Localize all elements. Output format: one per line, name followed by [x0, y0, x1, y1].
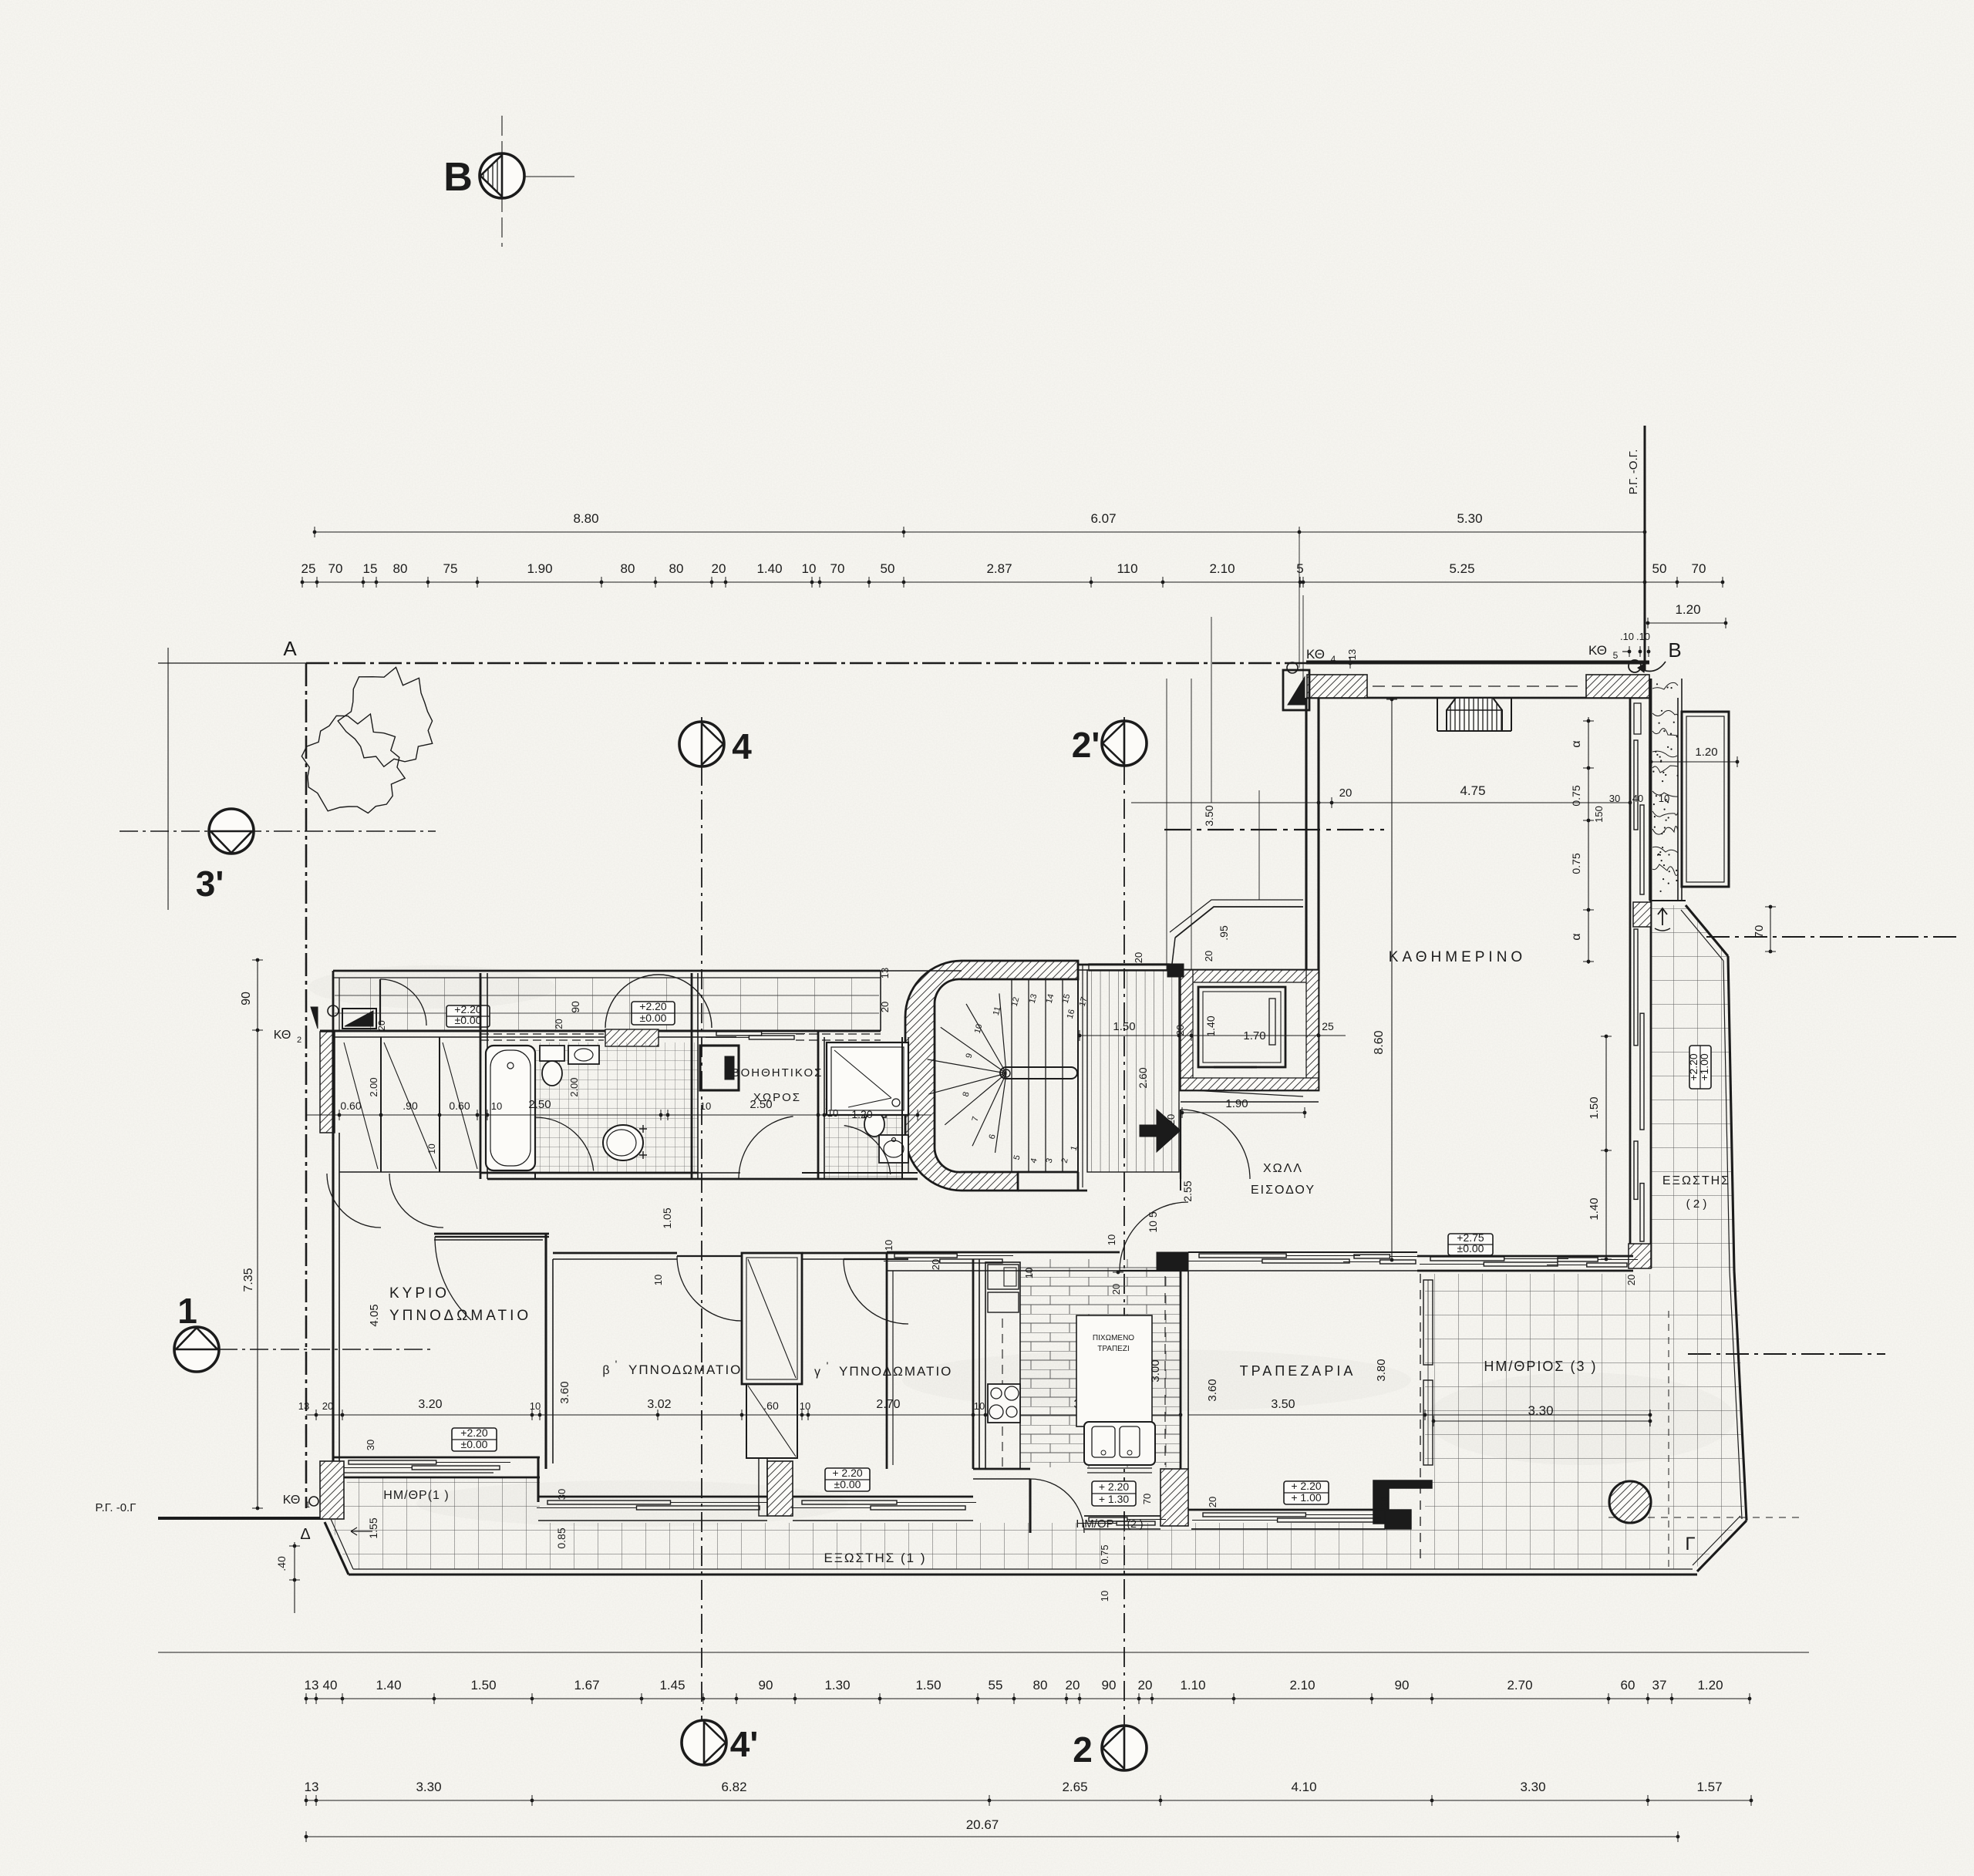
svg-text:0.60: 0.60	[449, 1100, 470, 1112]
svg-text:±0.00: ±0.00	[461, 1438, 488, 1450]
svg-text:ΧΩΛΛ: ΧΩΛΛ	[1263, 1162, 1303, 1175]
svg-text:3.50: 3.50	[1203, 805, 1215, 826]
svg-text:1.67: 1.67	[574, 1678, 599, 1692]
svg-text:1.05: 1.05	[661, 1207, 673, 1228]
svg-text:70: 70	[830, 561, 845, 576]
svg-text:3.00: 3.00	[1149, 1359, 1162, 1382]
svg-text:50: 50	[1652, 561, 1667, 576]
svg-text:3.20: 3.20	[418, 1398, 442, 1411]
svg-text:1.50: 1.50	[1588, 1096, 1601, 1119]
svg-text:50: 50	[881, 561, 895, 576]
svg-text:13: 13	[298, 1400, 309, 1412]
svg-text:3.30: 3.30	[1520, 1780, 1545, 1794]
svg-text:2.55: 2.55	[1181, 1180, 1194, 1201]
svg-text:2.70: 2.70	[876, 1398, 900, 1411]
svg-text:20: 20	[1165, 1114, 1177, 1125]
svg-text:2.10: 2.10	[1209, 561, 1235, 576]
svg-text:40: 40	[1632, 793, 1643, 804]
svg-text:30: 30	[365, 1440, 376, 1450]
svg-text:20: 20	[1133, 952, 1144, 963]
svg-text:70: 70	[1753, 925, 1766, 938]
svg-text:20: 20	[712, 561, 726, 576]
svg-text:.90: .90	[403, 1100, 418, 1112]
svg-text:+ 1.30: + 1.30	[1099, 1493, 1130, 1505]
svg-text:4.75: 4.75	[1460, 783, 1485, 798]
svg-text:20.67: 20.67	[966, 1817, 999, 1832]
svg-text:2.50: 2.50	[750, 1098, 772, 1111]
svg-text:10: 10	[883, 1240, 894, 1251]
svg-text:1.40: 1.40	[1588, 1197, 1601, 1220]
svg-text:4: 4	[732, 726, 752, 766]
svg-text:10: 10	[652, 1275, 664, 1285]
svg-text:±0.00: ±0.00	[640, 1012, 667, 1024]
svg-text:1.40: 1.40	[756, 561, 782, 576]
svg-text:4': 4'	[730, 1724, 759, 1764]
svg-text:13: 13	[879, 968, 891, 978]
svg-text:ΚΘ: ΚΘ	[1588, 643, 1607, 658]
svg-text:ΠΙΧΩΜΕΝΟ: ΠΙΧΩΜΕΝΟ	[1093, 1334, 1134, 1342]
svg-text:10: 10	[974, 1400, 985, 1412]
svg-text:ΗΜ/ΘΡ(1 ): ΗΜ/ΘΡ(1 )	[383, 1489, 449, 1502]
svg-text:3.02: 3.02	[647, 1398, 671, 1411]
svg-text:3.60: 3.60	[1206, 1379, 1219, 1401]
svg-text:10: 10	[827, 1107, 838, 1119]
svg-text:15: 15	[363, 561, 378, 576]
svg-text:α: α	[1570, 740, 1583, 747]
svg-text:90: 90	[569, 1001, 581, 1013]
svg-text:±0.00: ±0.00	[1457, 1242, 1484, 1255]
svg-text:P.Γ. -O.Γ.: P.Γ. -O.Γ.	[1627, 450, 1640, 495]
svg-text:3.30: 3.30	[1528, 1403, 1553, 1418]
svg-text:ΚΘ: ΚΘ	[274, 1029, 291, 1042]
svg-text:30: 30	[556, 1489, 568, 1500]
svg-text:1.40: 1.40	[376, 1678, 401, 1692]
svg-text:6.07: 6.07	[1090, 511, 1116, 526]
svg-text:( 2 ): ( 2 )	[1686, 1197, 1707, 1211]
svg-text:0.85: 0.85	[555, 1527, 568, 1548]
svg-text:Γ: Γ	[1685, 1534, 1695, 1554]
svg-text:70: 70	[328, 561, 343, 576]
svg-text:1.45: 1.45	[659, 1678, 685, 1692]
svg-text:.10: .10	[1636, 631, 1650, 642]
svg-text:20: 20	[879, 1002, 891, 1012]
svg-text:1.90: 1.90	[1225, 1097, 1248, 1110]
svg-text:20: 20	[1339, 786, 1352, 800]
svg-text:1.20: 1.20	[1695, 746, 1717, 759]
svg-text:±0.00: ±0.00	[455, 1014, 482, 1026]
svg-text:1.55: 1.55	[367, 1517, 379, 1538]
svg-text:2.60: 2.60	[1137, 1067, 1149, 1088]
svg-text:.95: .95	[1218, 925, 1230, 941]
svg-text:70: 70	[1692, 561, 1706, 576]
svg-text:2.10: 2.10	[1289, 1678, 1315, 1692]
svg-text:1.50: 1.50	[915, 1678, 941, 1692]
svg-text:ΕΙΣΟΔΟΥ: ΕΙΣΟΔΟΥ	[1251, 1184, 1315, 1197]
svg-text:+ 2.20: + 2.20	[832, 1467, 863, 1479]
svg-text:80: 80	[669, 561, 684, 576]
svg-text:.10: .10	[1620, 631, 1634, 642]
svg-text:20: 20	[1207, 1497, 1218, 1507]
svg-text:+1.00: +1.00	[1698, 1053, 1710, 1081]
svg-text:25: 25	[301, 561, 316, 576]
svg-text:ΤΡΑΠΕΖΙ: ΤΡΑΠΕΖΙ	[1097, 1345, 1129, 1353]
svg-text:2.87: 2.87	[986, 561, 1012, 576]
svg-text:ΚΘ: ΚΘ	[283, 1494, 301, 1507]
svg-text:2: 2	[297, 1036, 301, 1045]
svg-text:2.70: 2.70	[1507, 1678, 1532, 1692]
svg-text:+ 1.00: + 1.00	[1291, 1491, 1322, 1504]
svg-text:1.30: 1.30	[824, 1678, 850, 1692]
svg-text:ΥΠΝΟΔΩΜΑΤΙΟ: ΥΠΝΟΔΩΜΑΤΙΟ	[839, 1364, 952, 1379]
svg-text:3.30: 3.30	[416, 1780, 441, 1794]
svg-text:25: 25	[1322, 1020, 1334, 1032]
svg-text:10: 10	[800, 1400, 810, 1412]
svg-text:10: 10	[802, 561, 817, 576]
svg-text:+2.20: +2.20	[639, 1000, 667, 1012]
svg-text:0.60: 0.60	[340, 1100, 361, 1112]
svg-text:+ 2.20: + 2.20	[1291, 1480, 1322, 1492]
svg-text:20: 20	[554, 1019, 564, 1029]
svg-text:8.80: 8.80	[573, 511, 598, 526]
svg-text:ΚΘ: ΚΘ	[1306, 647, 1325, 662]
svg-text:ΕΞΩΣΤΗΣ (1 ): ΕΞΩΣΤΗΣ (1 )	[824, 1551, 927, 1565]
svg-text:4: 4	[1331, 654, 1336, 665]
svg-text:10: 10	[1106, 1234, 1117, 1245]
svg-text:20: 20	[1174, 1025, 1186, 1036]
svg-text:3.50: 3.50	[1271, 1398, 1295, 1411]
svg-text:1.50: 1.50	[470, 1678, 496, 1692]
svg-text:1.10: 1.10	[1180, 1678, 1205, 1692]
svg-text:6.82: 6.82	[721, 1780, 746, 1794]
svg-text:A: A	[283, 637, 297, 660]
svg-text:40: 40	[323, 1678, 338, 1692]
svg-text:90: 90	[240, 992, 253, 1005]
svg-text:+ 2.20: + 2.20	[1099, 1480, 1130, 1493]
svg-text:2.00: 2.00	[568, 1077, 580, 1096]
svg-text:1.20: 1.20	[851, 1108, 872, 1120]
svg-text:': '	[615, 1358, 618, 1370]
svg-text:20: 20	[376, 1020, 387, 1031]
svg-text:10: 10	[700, 1100, 711, 1112]
svg-text:ΥΠΝΟΔΩΜΑΤΙΟ: ΥΠΝΟΔΩΜΑΤΙΟ	[628, 1362, 742, 1377]
svg-text:110: 110	[1117, 561, 1137, 576]
svg-text:55: 55	[989, 1678, 1003, 1692]
svg-text:1.40: 1.40	[1204, 1015, 1217, 1036]
svg-text:70: 70	[1141, 1494, 1153, 1504]
svg-text:.60: .60	[763, 1399, 779, 1412]
svg-text:ΚΥΡΙΟ: ΚΥΡΙΟ	[389, 1285, 450, 1302]
svg-text:20: 20	[1203, 951, 1214, 962]
svg-text:13: 13	[305, 1678, 319, 1692]
svg-text:20: 20	[1625, 1275, 1637, 1285]
svg-text:10: 10	[1023, 1268, 1035, 1278]
svg-text:13: 13	[1346, 649, 1358, 660]
svg-text:2.50: 2.50	[528, 1098, 551, 1111]
svg-text:80: 80	[1033, 1678, 1048, 1692]
svg-text:1.20: 1.20	[1675, 602, 1700, 617]
svg-text:150: 150	[1593, 806, 1605, 823]
svg-text:10: 10	[1659, 793, 1669, 804]
svg-text:3': 3'	[196, 864, 224, 904]
svg-text:10: 10	[491, 1100, 502, 1112]
svg-text:7.35: 7.35	[242, 1268, 255, 1292]
svg-text:75: 75	[443, 561, 458, 576]
svg-text:20: 20	[1379, 1497, 1390, 1507]
svg-text:80: 80	[393, 561, 408, 576]
svg-text:5: 5	[1296, 561, 1303, 576]
svg-text:8.60: 8.60	[1373, 1030, 1386, 1054]
svg-text:ΚΑΘΗΜΕΡΙΝΟ: ΚΑΘΗΜΕΡΙΝΟ	[1389, 949, 1526, 965]
svg-text:Δ: Δ	[300, 1526, 310, 1543]
svg-text:B: B	[1668, 638, 1681, 662]
svg-text:β: β	[602, 1364, 609, 1377]
svg-text:ΗΜ/ΘΡ: ΗΜ/ΘΡ	[1076, 1517, 1113, 1531]
svg-text:+2.20: +2.20	[460, 1426, 488, 1439]
svg-text:2': 2'	[1072, 725, 1100, 765]
svg-text:ΤΡΑΠΕΖΑΡΙΑ: ΤΡΑΠΕΖΑΡΙΑ	[1240, 1363, 1356, 1379]
svg-text:ΒΟΗΘΗΤΙΚΟΣ: ΒΟΗΘΗΤΙΚΟΣ	[732, 1066, 824, 1079]
svg-text:60: 60	[1621, 1678, 1635, 1692]
svg-text:±0.00: ±0.00	[834, 1478, 861, 1490]
svg-text:0.75: 0.75	[1099, 1544, 1110, 1564]
svg-text:90: 90	[1395, 1678, 1410, 1692]
svg-text:.40: .40	[275, 1556, 288, 1571]
svg-text:ΗΜ/ΘΡΙΟΣ (3 ): ΗΜ/ΘΡΙΟΣ (3 )	[1484, 1359, 1597, 1374]
svg-text:': '	[827, 1359, 829, 1372]
svg-text:5: 5	[1613, 650, 1619, 661]
svg-text:0.75: 0.75	[1570, 853, 1582, 874]
svg-text:α: α	[1570, 933, 1583, 940]
svg-text:10: 10	[426, 1143, 437, 1154]
svg-text:90: 90	[759, 1678, 773, 1692]
svg-text:4.10: 4.10	[1291, 1780, 1316, 1794]
svg-text:3.60: 3.60	[558, 1381, 571, 1403]
svg-text:1.50: 1.50	[1113, 1020, 1135, 1033]
svg-text:2.00: 2.00	[368, 1077, 379, 1096]
svg-text:ΥΠΝΟΔΩΜΑΤΙΟ: ΥΠΝΟΔΩΜΑΤΙΟ	[389, 1308, 531, 1324]
svg-text:1.90: 1.90	[527, 561, 552, 576]
svg-text:1.57: 1.57	[1696, 1780, 1722, 1794]
svg-text:1.20: 1.20	[1697, 1678, 1723, 1692]
svg-text:1: 1	[177, 1291, 197, 1331]
svg-text:2.65: 2.65	[1062, 1780, 1087, 1794]
svg-text:20: 20	[322, 1400, 333, 1412]
svg-text:5.30: 5.30	[1457, 511, 1482, 526]
svg-text:20: 20	[930, 1259, 942, 1270]
svg-text:10: 10	[530, 1400, 541, 1412]
svg-text:5.25: 5.25	[1449, 561, 1474, 576]
svg-text:2: 2	[1073, 1729, 1093, 1770]
svg-text:γ: γ	[814, 1366, 820, 1379]
svg-text:3.80: 3.80	[1375, 1359, 1388, 1381]
svg-text:20: 20	[1066, 1678, 1080, 1692]
svg-text:P.Γ. -0.Γ: P.Γ. -0.Γ	[96, 1501, 136, 1514]
svg-text:13: 13	[305, 1780, 319, 1794]
svg-text:90: 90	[1102, 1678, 1117, 1692]
svg-text:4.05: 4.05	[368, 1304, 381, 1326]
svg-text:(2 ): (2 )	[1127, 1517, 1144, 1530]
svg-text:37: 37	[1652, 1678, 1667, 1692]
svg-text:80: 80	[621, 561, 635, 576]
svg-text:10: 10	[1099, 1591, 1110, 1602]
svg-text:20: 20	[1138, 1678, 1153, 1692]
svg-text:1.70: 1.70	[1243, 1029, 1265, 1042]
svg-text:ΕΞΩΣΤΗΣ: ΕΞΩΣΤΗΣ	[1662, 1174, 1730, 1187]
svg-text:B: B	[443, 155, 473, 200]
